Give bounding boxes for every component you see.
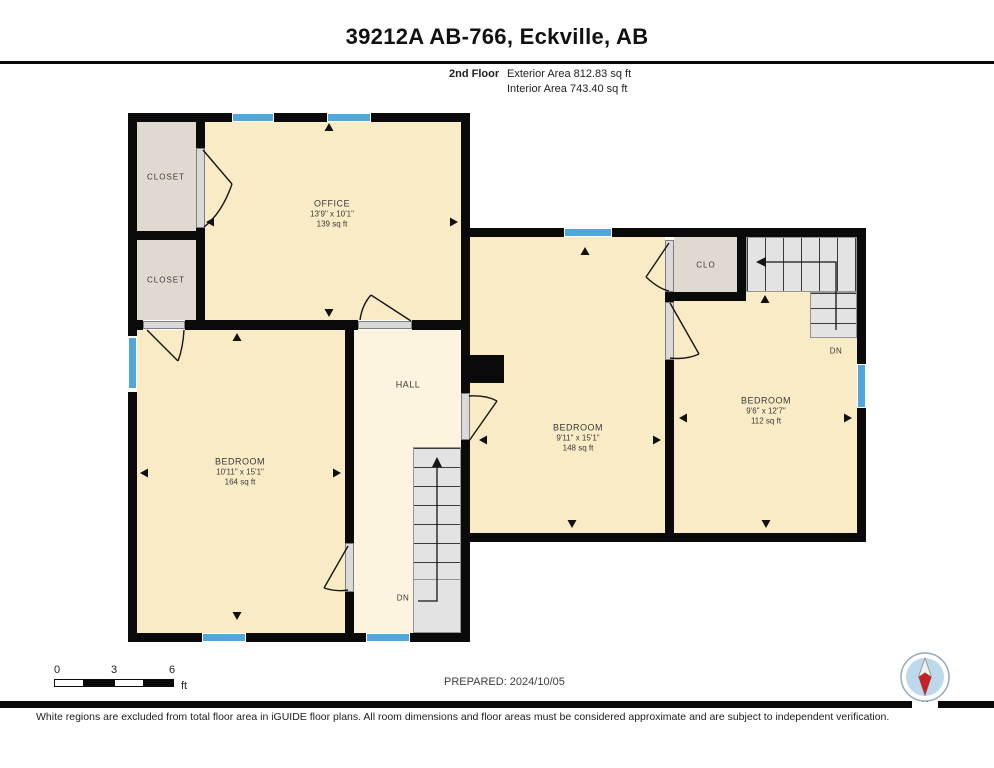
room-name: OFFICE [310, 199, 354, 210]
stairs-down-right-label: DN [830, 347, 843, 356]
bedroom-middle-label: BEDROOM 9'11" x 15'1" 148 sq ft [553, 423, 603, 454]
floor-plan: CLOSET CLOSET OFFICE 13'9" x 10'1" 139 s… [0, 0, 994, 768]
plan-overlay [0, 0, 994, 768]
compass-icon [897, 649, 953, 705]
scale-tick-3: 3 [111, 664, 117, 676]
room-name: CLOSET [147, 276, 185, 285]
room-name: BEDROOM [215, 457, 265, 468]
room-area: 148 sq ft [553, 444, 603, 454]
room-name: CLOSET [147, 173, 185, 182]
room-area: 139 sq ft [310, 220, 354, 230]
prepared-date: PREPARED: 2024/10/05 [444, 676, 565, 688]
office-label: OFFICE 13'9" x 10'1" 139 sq ft [310, 199, 354, 230]
dn-label: DN [397, 594, 410, 603]
room-area: 164 sq ft [215, 478, 265, 488]
door-swings [147, 150, 699, 591]
disclaimer-text: White regions are excluded from total fl… [36, 711, 889, 723]
scale-tick-0: 0 [54, 664, 60, 676]
bedroom-right-label: BEDROOM 9'6" x 12'7" 112 sq ft [741, 396, 791, 427]
stair-arrows [418, 262, 836, 601]
dn-label: DN [830, 347, 843, 356]
clo-label: CLO [696, 261, 715, 270]
room-name: HALL [396, 380, 421, 391]
floor-plan-page: 39212A AB-766, Eckville, AB 2nd Floor Ex… [0, 0, 994, 768]
room-area: 112 sq ft [741, 417, 791, 427]
room-dims: 10'11" x 15'1" [215, 468, 265, 478]
closet1-label: CLOSET [147, 173, 185, 182]
hall-label: HALL [396, 380, 421, 391]
scale-segment [114, 679, 144, 687]
scale-tick-6: 6 [169, 664, 175, 676]
room-dims: 9'11" x 15'1" [553, 434, 603, 444]
stairs-down-hall-label: DN [397, 594, 410, 603]
room-dims: 13'9" x 10'1" [310, 210, 354, 220]
scale-segment [54, 679, 84, 687]
room-name: BEDROOM [741, 396, 791, 407]
scale-segment [84, 679, 114, 687]
footer-divider [0, 701, 994, 708]
room-name: CLO [696, 261, 715, 270]
closet2-label: CLOSET [147, 276, 185, 285]
scale-segment [144, 679, 174, 687]
scale-unit: ft [181, 680, 187, 692]
room-dims: 9'6" x 12'7" [741, 407, 791, 417]
dimension-arrows [140, 123, 852, 620]
room-name: BEDROOM [553, 423, 603, 434]
bedroom-left-label: BEDROOM 10'11" x 15'1" 164 sq ft [215, 457, 265, 488]
